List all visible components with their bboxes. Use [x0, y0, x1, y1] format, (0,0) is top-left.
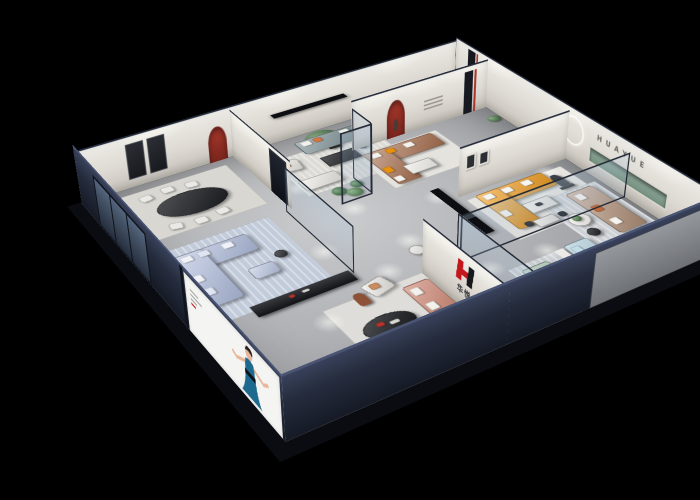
floor-spotlight: [367, 259, 411, 284]
picture-frame: [479, 149, 490, 166]
floor-spotlight: [306, 308, 352, 336]
armchair-white: [359, 275, 397, 297]
wall-caption-lines: [424, 95, 443, 113]
statuette-icon: [394, 119, 399, 131]
wall-art-panel: [146, 134, 168, 174]
terracotta-statue: [350, 292, 373, 307]
ottoman-periwinkle: [247, 260, 283, 280]
striped-art-panel: [463, 70, 473, 115]
console-decor: [301, 288, 311, 293]
pillow: [220, 241, 236, 250]
red-stripe: [473, 69, 477, 112]
media-console-dark: [249, 270, 358, 317]
pillow: [408, 287, 424, 297]
scene-3d: HUAYUE 华悦: [82, 87, 700, 442]
console-decor-red: [288, 294, 296, 299]
pillow: [179, 255, 195, 264]
dining-chair: [168, 221, 185, 230]
table-decor: [389, 318, 401, 325]
table-decor-red: [375, 321, 386, 327]
pillow: [196, 249, 212, 258]
pillow: [367, 282, 381, 290]
wall-art-panel: [125, 140, 147, 180]
showroom-render: HUAYUE 华悦: [0, 0, 700, 500]
poster-text-lines: [190, 288, 203, 319]
tray-table-black: [584, 226, 604, 237]
side-table: [272, 248, 290, 259]
